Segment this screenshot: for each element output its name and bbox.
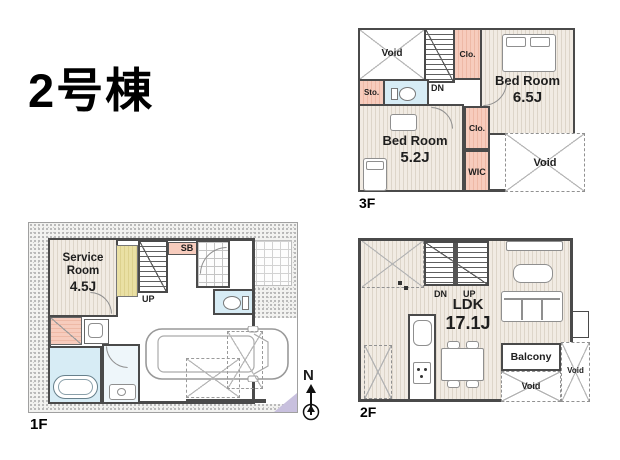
toilet-icon xyxy=(399,87,416,101)
sink-bowl xyxy=(117,388,126,396)
room-label: Clo. xyxy=(455,50,480,59)
room-size-label: 4.5J xyxy=(52,280,114,295)
tv-board-icon xyxy=(506,241,563,251)
washer-drum xyxy=(88,323,103,338)
page-title: 2号棟 xyxy=(28,52,154,121)
dining-table-icon xyxy=(441,348,484,381)
room-size-label: 17.1J xyxy=(428,314,508,334)
toilet-icon xyxy=(391,88,398,100)
stairs-1f xyxy=(138,240,168,293)
planned-space-2f xyxy=(364,345,392,399)
closet-1f xyxy=(116,245,138,297)
room-closet-top-3f: Clo. xyxy=(453,28,482,80)
kitchen-sink-icon xyxy=(413,320,432,346)
room-storage-3f: Sto. xyxy=(358,79,385,106)
stairs-up-label: UP xyxy=(142,295,155,305)
chair-icon xyxy=(466,341,479,349)
room-label: Void xyxy=(506,157,584,169)
room-label: WIC xyxy=(466,168,488,178)
room-label: Sto. xyxy=(360,89,383,98)
room-label: Void xyxy=(502,382,560,392)
washing-machine-icon xyxy=(84,319,109,344)
room-closet-mid-3f: Clo. xyxy=(464,106,490,150)
burner-dot xyxy=(417,368,420,371)
sofa-icon xyxy=(501,291,563,322)
bathtub-icon xyxy=(58,379,93,395)
gate-bar xyxy=(186,399,266,403)
room-label: LDK xyxy=(428,297,508,314)
room-toilet-1f xyxy=(213,289,254,315)
under-stair-storage-1f xyxy=(50,317,82,345)
corner-triangle xyxy=(274,393,297,412)
post-mark xyxy=(398,281,402,285)
floorplan-sheet: 2号棟 Void Clo. Bed Room 6.5J Sto. DN xyxy=(0,0,620,460)
stair-rail xyxy=(453,243,458,284)
room-size-label: 5.2J xyxy=(370,150,460,167)
stairs-3f xyxy=(424,28,455,83)
desk-icon xyxy=(390,114,417,131)
post-mark xyxy=(404,286,408,290)
shaft-2f xyxy=(572,311,589,338)
room-label: Void xyxy=(360,48,424,59)
room-label: Service Room xyxy=(52,252,114,277)
coffee-table-icon xyxy=(513,264,553,283)
room-void-right-2f: Void xyxy=(561,342,590,402)
sofa-seam xyxy=(521,298,523,320)
room-label: Balcony xyxy=(503,352,559,364)
stairs-dn-label: DN xyxy=(431,84,444,94)
room-void-top-3f: Void xyxy=(358,28,426,81)
room-toilet-3f xyxy=(383,79,429,106)
balcony-2f: Balcony xyxy=(501,343,561,371)
room-bath-1f xyxy=(48,346,102,404)
room-label: Bed Room xyxy=(370,134,460,148)
floor-label-1f: 1F xyxy=(30,416,48,433)
sofa-seam xyxy=(541,298,543,320)
toilet-icon xyxy=(242,296,249,310)
kitchen-counter xyxy=(408,314,436,401)
floor-label-3f: 3F xyxy=(359,195,375,211)
compass-north-label: N xyxy=(303,368,314,385)
pillow-icon xyxy=(530,37,550,47)
compass-icon xyxy=(300,384,322,422)
room-void-bottom-2f: Void xyxy=(501,371,561,402)
burner-dot xyxy=(424,368,427,371)
chair-icon xyxy=(466,380,479,388)
room-label: Void xyxy=(562,367,589,376)
room-label: Clo. xyxy=(466,124,488,133)
chair-icon xyxy=(447,341,460,349)
floor-label-2f: 2F xyxy=(360,404,376,420)
toilet-icon xyxy=(223,296,241,310)
chair-icon xyxy=(447,380,460,388)
burner-dot xyxy=(420,375,423,378)
room-void-br-3f: Void xyxy=(505,133,585,192)
stove-icon xyxy=(413,362,431,384)
room-wic-3f: WIC xyxy=(464,150,490,192)
sofa-seam xyxy=(504,298,560,300)
parking-guide-x xyxy=(227,331,263,389)
open-void-area-2f xyxy=(362,241,424,288)
pillow-icon xyxy=(506,37,526,47)
